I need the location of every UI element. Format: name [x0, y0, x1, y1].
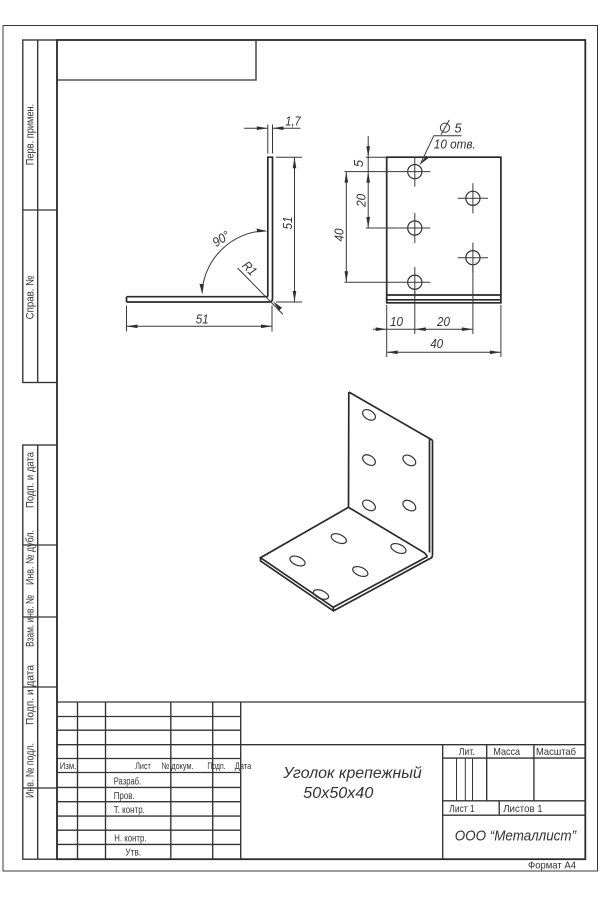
svg-text:Лист 1: Лист 1 — [449, 803, 475, 815]
svg-text:10: 10 — [390, 314, 404, 329]
svg-text:5: 5 — [351, 159, 366, 167]
svg-text:Лист: Лист — [135, 761, 151, 772]
svg-text:Инв. № дубл.: Инв. № дубл. — [25, 530, 37, 585]
svg-text:Уголок крепежный: Уголок крепежный — [282, 765, 422, 782]
svg-text:Перв. примен.: Перв. примен. — [25, 104, 37, 166]
svg-text:Листов 1: Листов 1 — [503, 803, 543, 815]
svg-text:Разраб.: Разраб. — [114, 776, 142, 788]
svg-text:51: 51 — [280, 217, 295, 230]
svg-text:51: 51 — [196, 312, 209, 327]
svg-text:Подп. и дата: Подп. и дата — [25, 451, 37, 508]
svg-text:40: 40 — [430, 336, 444, 351]
svg-text:5: 5 — [454, 121, 462, 136]
svg-text:Масштаб: Масштаб — [536, 746, 576, 758]
svg-text:1,7: 1,7 — [285, 114, 301, 129]
svg-text:Пров.: Пров. — [114, 790, 135, 802]
svg-text:90°: 90° — [209, 228, 232, 250]
svg-text:№ докум.: № докум. — [162, 761, 194, 772]
svg-text:Формат А4: Формат А4 — [528, 861, 576, 872]
svg-text:Лит.: Лит. — [459, 746, 475, 758]
svg-text:Н. контр.: Н. контр. — [114, 832, 146, 844]
svg-text:Дата: Дата — [235, 761, 252, 772]
svg-text:Утв.: Утв. — [125, 847, 141, 859]
svg-text:Изм.: Изм. — [60, 761, 77, 772]
svg-text:10 отв.: 10 отв. — [434, 137, 476, 152]
svg-text:Справ. №: Справ. № — [25, 275, 37, 319]
svg-text:40: 40 — [332, 228, 347, 242]
svg-text:Подп. и дата: Подп. и дата — [25, 664, 37, 725]
svg-text:Инв. № подл.: Инв. № подл. — [25, 743, 37, 798]
svg-text:50х50х40: 50х50х40 — [303, 785, 373, 802]
svg-text:20: 20 — [436, 314, 451, 329]
svg-text:Т. контр.: Т. контр. — [114, 804, 145, 816]
svg-text:Взам. инв. №: Взам. инв. № — [25, 595, 37, 647]
svg-text:20: 20 — [354, 193, 369, 208]
svg-text:ООО “Металлист”: ООО “Металлист” — [455, 829, 577, 845]
svg-text:Подп.: Подп. — [207, 761, 225, 772]
svg-text:R1: R1 — [239, 258, 260, 279]
svg-text:Масса: Масса — [493, 746, 520, 758]
